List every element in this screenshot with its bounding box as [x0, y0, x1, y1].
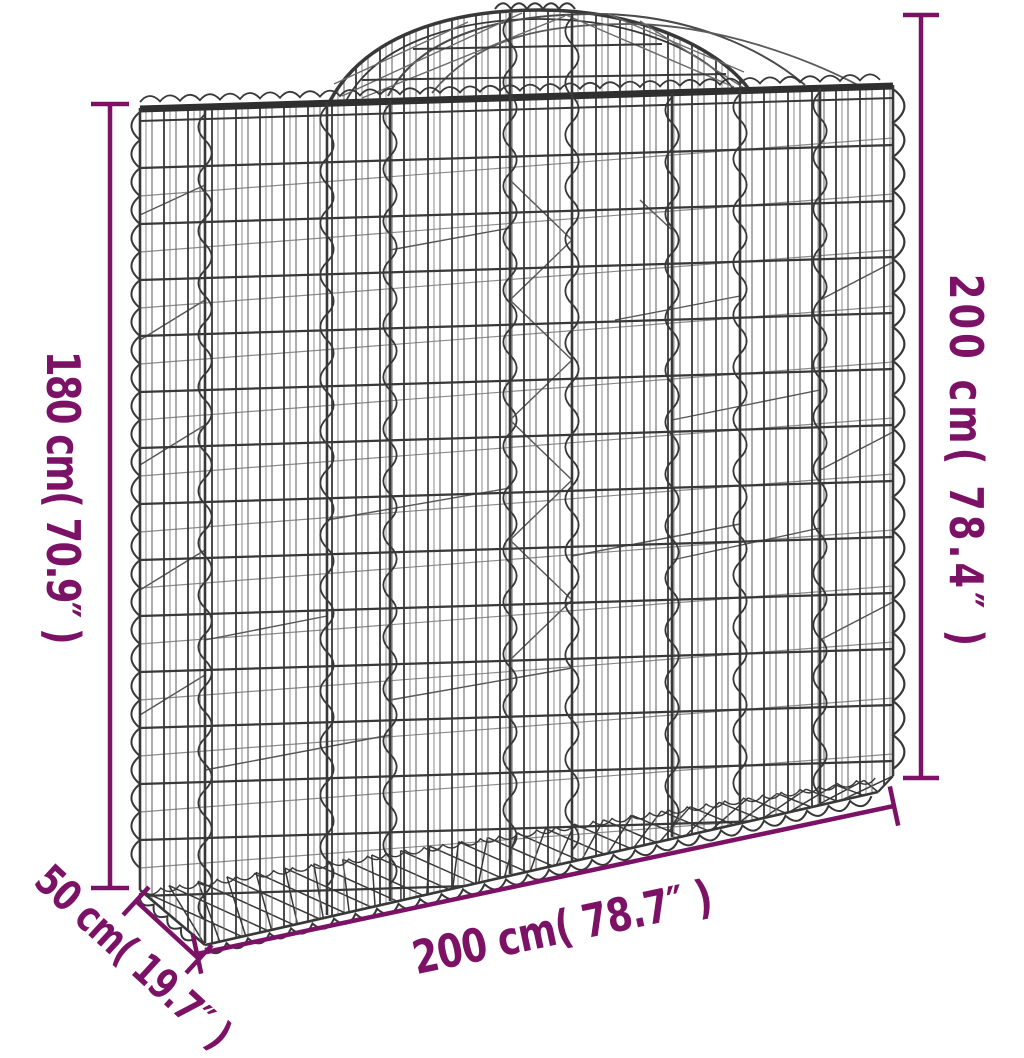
gabion-basket-drawing	[0, 0, 1024, 1024]
dimension-label-left-height: 180 cm( 70.9″ )	[40, 351, 86, 643]
wire-mesh-grid	[140, 5, 893, 955]
diagram-canvas: 180 cm( 70.9″ ) 200 cm( 78.4″ ) 200 cm( …	[0, 0, 1024, 1024]
dimension-label-right-height: 200 cm( 78.4″ )	[943, 274, 989, 650]
